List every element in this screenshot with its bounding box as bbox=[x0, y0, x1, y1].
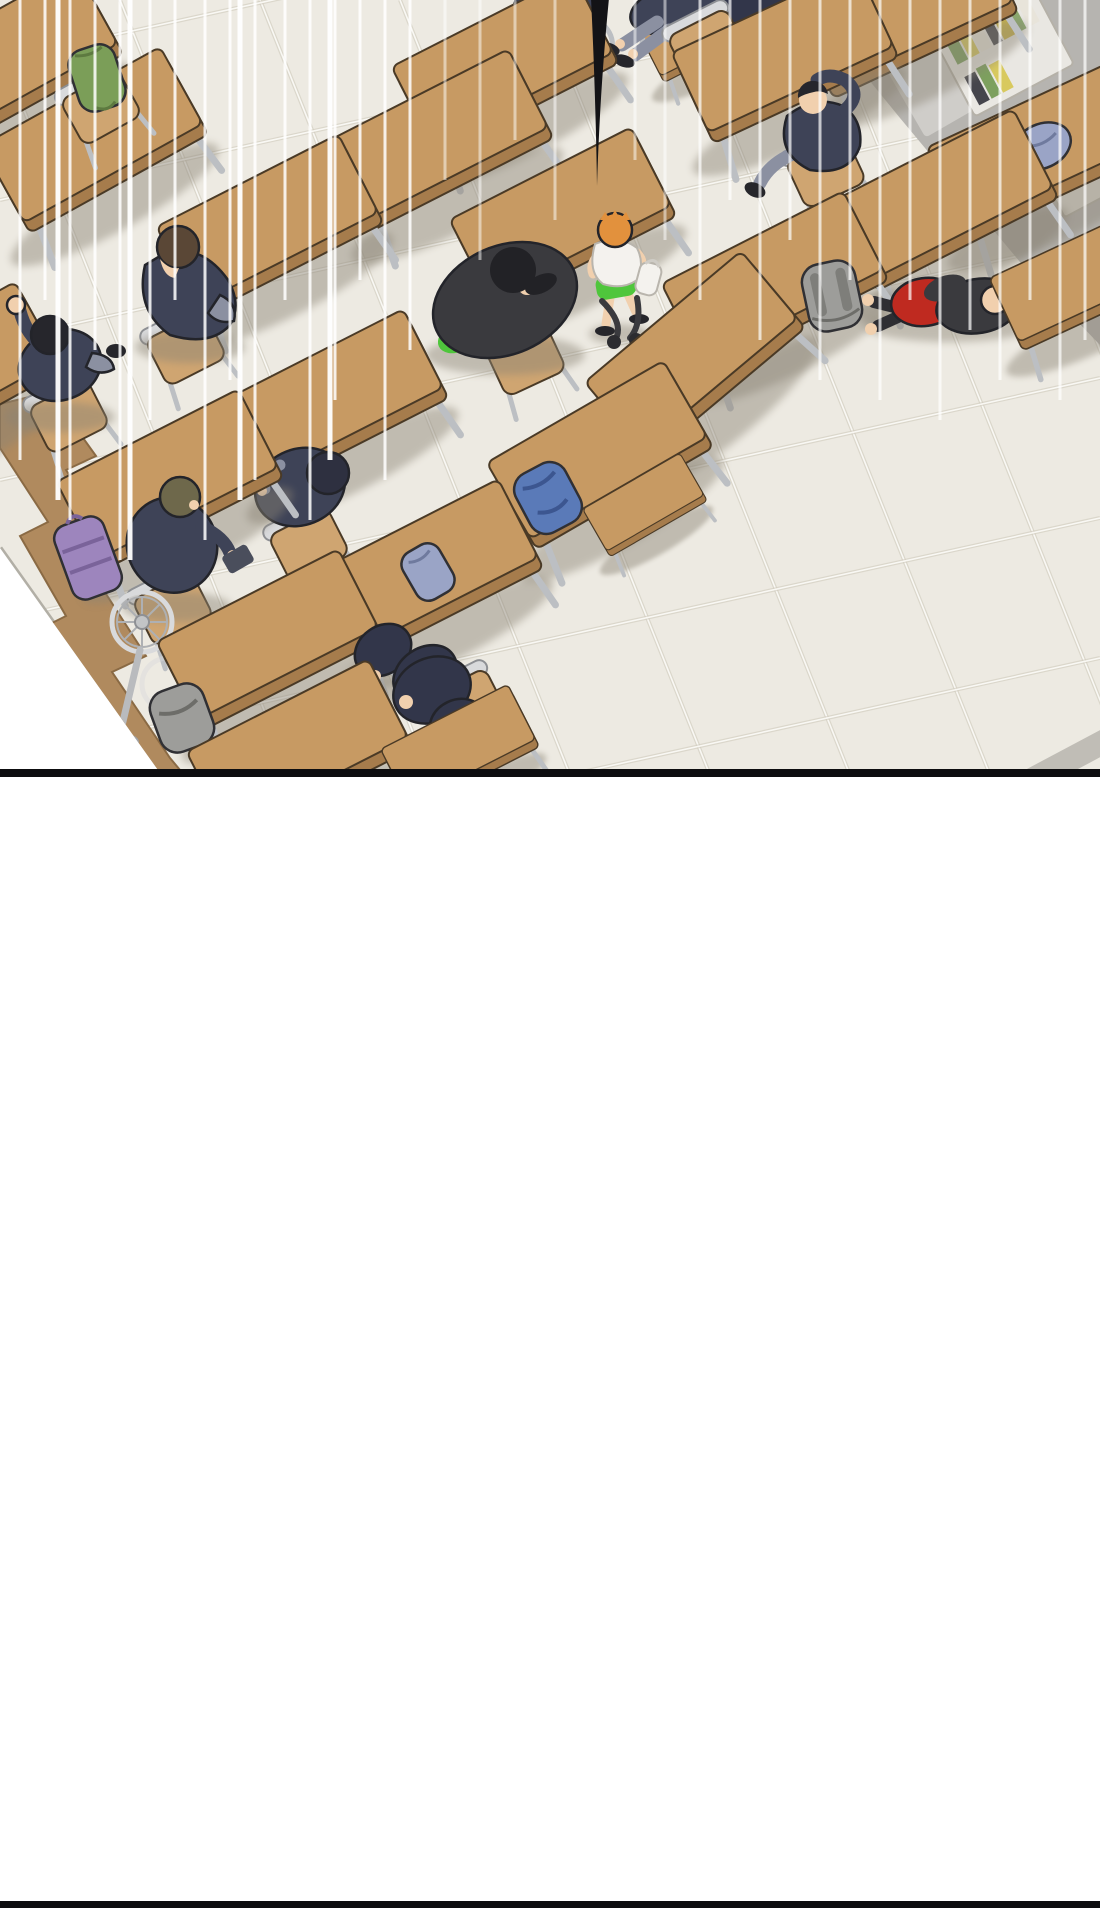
page-bottom-border bbox=[0, 1901, 1100, 1908]
comic-panel bbox=[0, 0, 1100, 1908]
classroom-scene bbox=[0, 0, 1100, 1040]
panel-bottom-border bbox=[0, 769, 1100, 777]
comic-page bbox=[0, 0, 1100, 1908]
